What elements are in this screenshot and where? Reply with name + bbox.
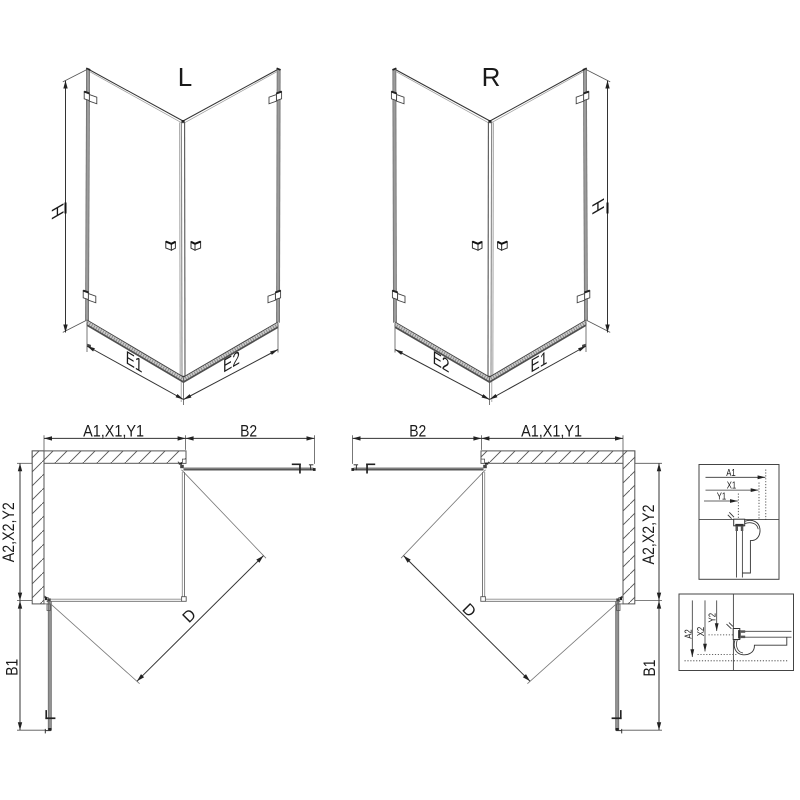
svg-text:D: D [459,601,479,621]
svg-text:A2: A2 [682,629,694,639]
svg-text:A2,X2,Y2: A2,X2,Y2 [640,505,658,565]
svg-text:R: R [482,62,501,92]
svg-text:E2: E2 [433,346,450,377]
svg-text:E2: E2 [223,346,240,377]
svg-text:A1,X1,Y1: A1,X1,Y1 [83,422,144,440]
svg-text:B1: B1 [4,659,22,676]
svg-text:H: H [48,200,67,224]
svg-text:A2,X2,Y2: A2,X2,Y2 [0,502,18,562]
svg-text:X1: X1 [727,480,737,492]
svg-text:Y2: Y2 [706,613,718,623]
svg-text:D: D [180,606,200,626]
svg-text:A1: A1 [726,467,736,479]
svg-text:B2: B2 [240,422,257,440]
svg-text:B2: B2 [409,422,426,440]
svg-text:B1: B1 [641,660,659,677]
svg-text:A1,X1,Y1: A1,X1,Y1 [521,422,582,440]
svg-text:Y1: Y1 [717,491,727,503]
svg-text:X2: X2 [695,627,707,637]
svg-text:L: L [178,62,192,92]
svg-text:H: H [588,195,607,219]
